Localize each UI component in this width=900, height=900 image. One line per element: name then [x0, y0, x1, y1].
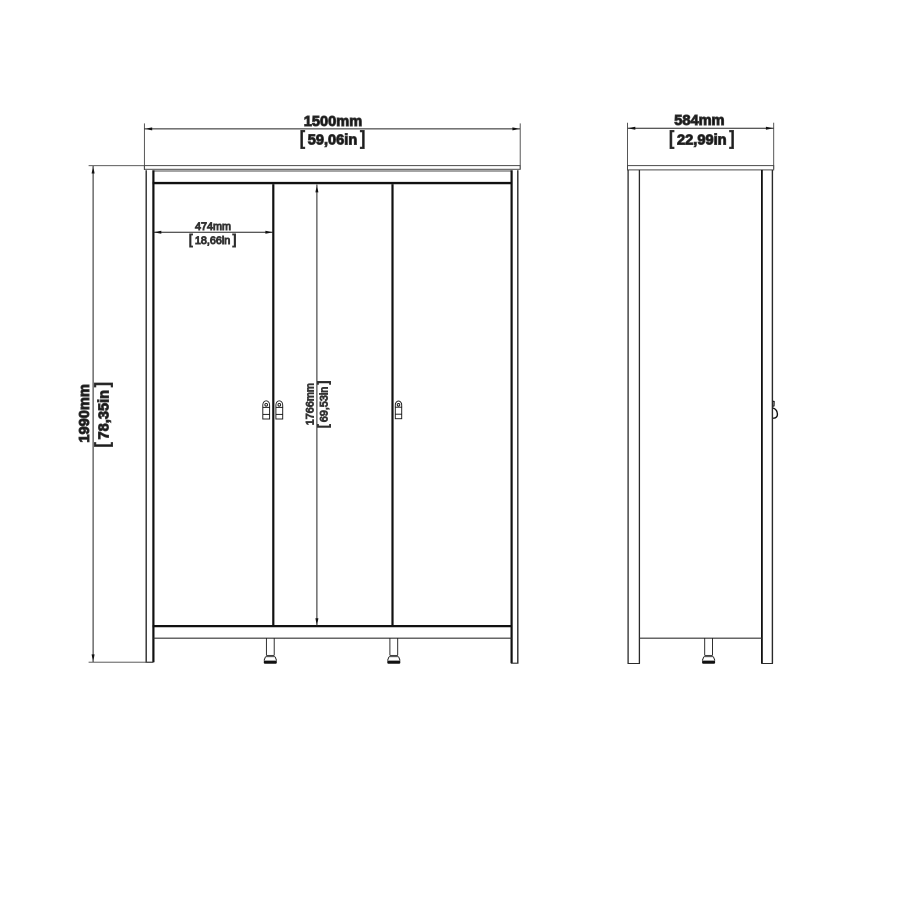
svg-text:[59,06in]: [59,06in] — [299, 129, 365, 150]
svg-text:584mm: 584mm — [674, 113, 724, 129]
svg-text:1990mm: 1990mm — [77, 384, 93, 442]
svg-text:[69,53in]: [69,53in] — [316, 381, 331, 429]
svg-text:474mm: 474mm — [195, 221, 231, 233]
svg-text:[18,66in]: [18,66in] — [189, 232, 237, 247]
svg-text:1500mm: 1500mm — [304, 114, 362, 130]
svg-text:[22,99in]: [22,99in] — [669, 128, 735, 149]
svg-text:[78,35in]: [78,35in] — [93, 382, 114, 448]
svg-text:1766mm: 1766mm — [305, 383, 317, 425]
